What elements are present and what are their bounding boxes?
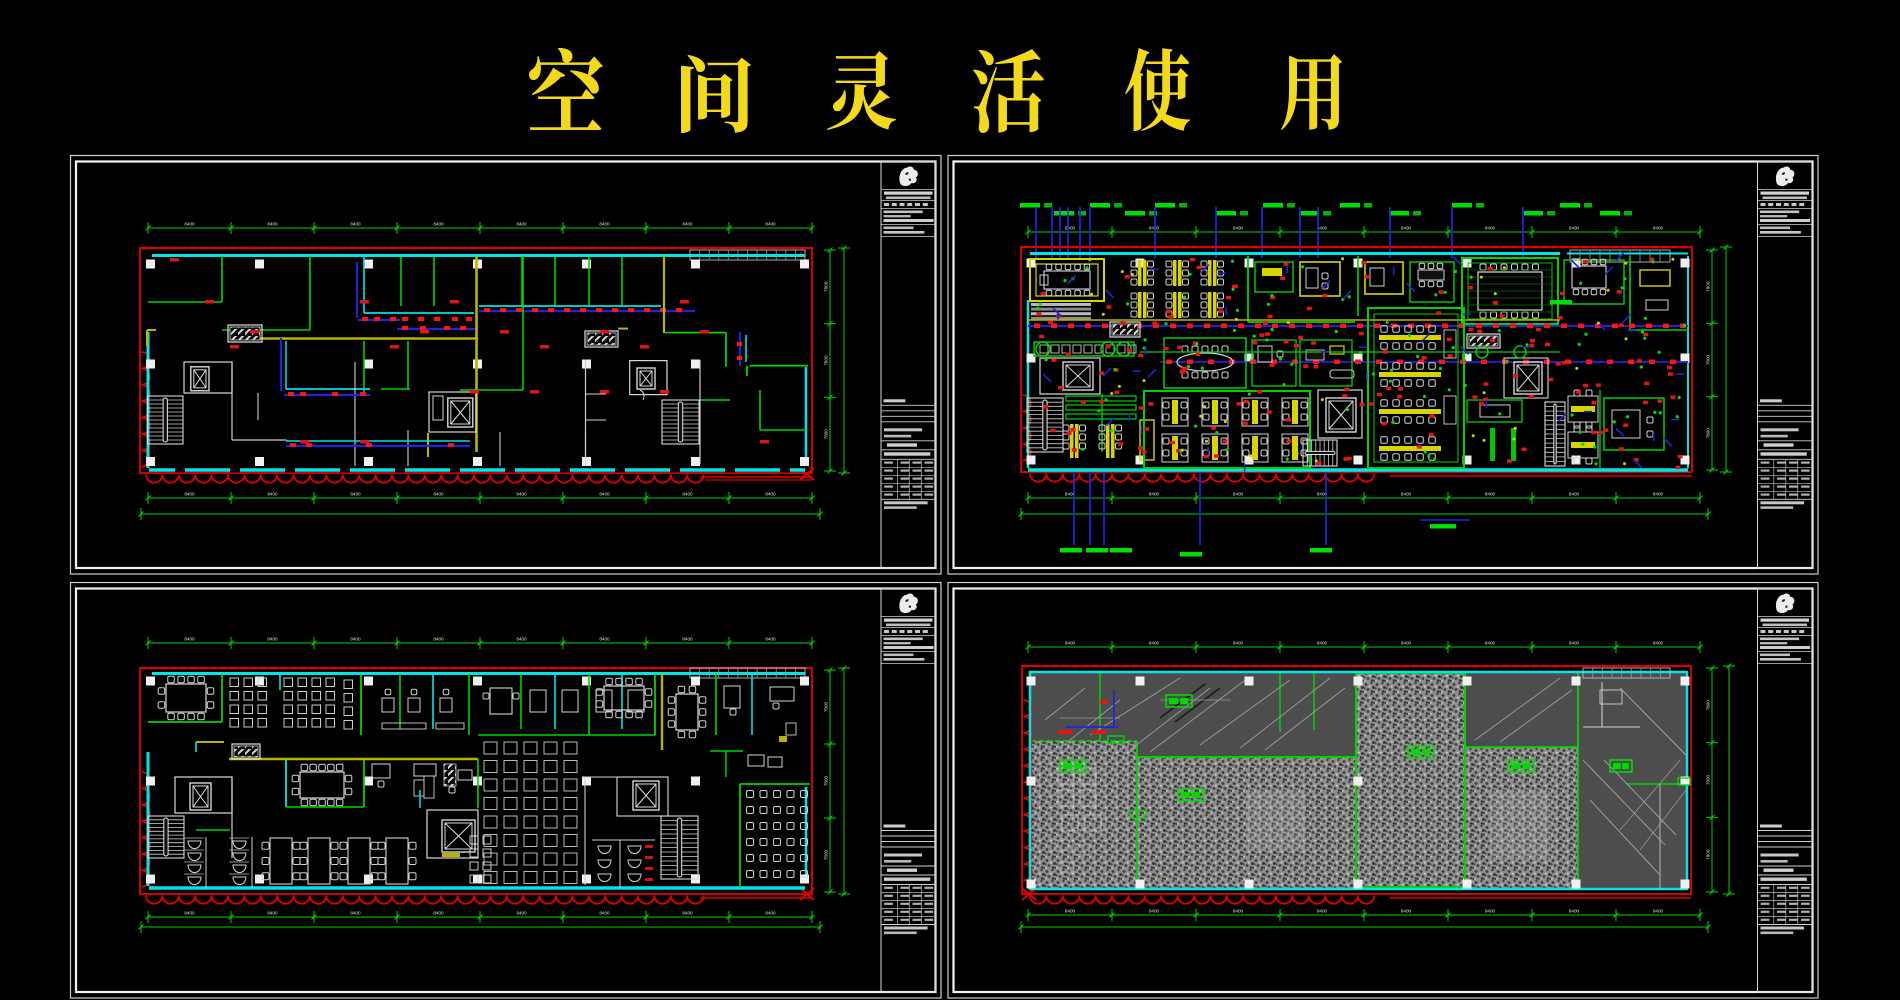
svg-text:8400: 8400 bbox=[1233, 641, 1244, 646]
svg-text:7800: 7800 bbox=[824, 429, 829, 440]
svg-text:8400: 8400 bbox=[682, 637, 693, 642]
svg-text:8400: 8400 bbox=[1653, 909, 1664, 914]
svg-text:8400: 8400 bbox=[184, 222, 195, 227]
svg-text:8400: 8400 bbox=[1065, 226, 1076, 231]
svg-text:8400: 8400 bbox=[765, 222, 776, 227]
svg-text:7800: 7800 bbox=[824, 355, 829, 366]
svg-text:8400: 8400 bbox=[1485, 226, 1496, 231]
svg-text:8400: 8400 bbox=[1317, 641, 1328, 646]
svg-text:8400: 8400 bbox=[1401, 641, 1412, 646]
svg-text:8400: 8400 bbox=[1317, 909, 1328, 914]
svg-text:8400: 8400 bbox=[1653, 492, 1664, 497]
svg-text:7800: 7800 bbox=[824, 701, 829, 712]
svg-text:7800: 7800 bbox=[824, 281, 829, 292]
svg-text:7800: 7800 bbox=[1706, 774, 1711, 785]
svg-text:8400: 8400 bbox=[1065, 909, 1076, 914]
svg-text:8400: 8400 bbox=[765, 637, 776, 642]
svg-text:8400: 8400 bbox=[682, 911, 693, 916]
svg-text:8400: 8400 bbox=[1653, 226, 1664, 231]
svg-text:8400: 8400 bbox=[1065, 641, 1076, 646]
svg-text:8400: 8400 bbox=[1485, 492, 1496, 497]
svg-text:8400: 8400 bbox=[765, 911, 776, 916]
svg-text:7800: 7800 bbox=[824, 849, 829, 860]
svg-text:8400: 8400 bbox=[516, 222, 527, 227]
svg-text:8400: 8400 bbox=[1485, 909, 1496, 914]
svg-text:8400: 8400 bbox=[516, 492, 527, 497]
svg-text:8400: 8400 bbox=[1569, 492, 1580, 497]
svg-text:8400: 8400 bbox=[267, 222, 278, 227]
svg-text:8400: 8400 bbox=[599, 492, 610, 497]
svg-text:8400: 8400 bbox=[599, 911, 610, 916]
svg-text:7800: 7800 bbox=[1706, 428, 1711, 439]
svg-text:8400: 8400 bbox=[267, 911, 278, 916]
svg-text:8400: 8400 bbox=[765, 492, 776, 497]
svg-text:8400: 8400 bbox=[267, 492, 278, 497]
svg-text:8400: 8400 bbox=[516, 911, 527, 916]
svg-text:8400: 8400 bbox=[350, 492, 361, 497]
svg-text:8400: 8400 bbox=[682, 492, 693, 497]
svg-text:8400: 8400 bbox=[350, 911, 361, 916]
svg-text:8400: 8400 bbox=[433, 637, 444, 642]
svg-text:8400: 8400 bbox=[184, 492, 195, 497]
svg-text:8400: 8400 bbox=[516, 637, 527, 642]
svg-text:8400: 8400 bbox=[433, 492, 444, 497]
svg-text:8400: 8400 bbox=[682, 222, 693, 227]
svg-text:7800: 7800 bbox=[1706, 849, 1711, 860]
svg-text:8400: 8400 bbox=[1653, 641, 1664, 646]
svg-text:8400: 8400 bbox=[433, 222, 444, 227]
svg-text:8400: 8400 bbox=[1401, 909, 1412, 914]
svg-text:8400: 8400 bbox=[1569, 641, 1580, 646]
svg-text:8400: 8400 bbox=[184, 637, 195, 642]
svg-text:7800: 7800 bbox=[1706, 281, 1711, 292]
svg-text:7800: 7800 bbox=[1706, 700, 1711, 711]
svg-text:8400: 8400 bbox=[433, 911, 444, 916]
svg-text:8400: 8400 bbox=[1485, 641, 1496, 646]
svg-text:8400: 8400 bbox=[1569, 909, 1580, 914]
svg-text:8400: 8400 bbox=[184, 911, 195, 916]
svg-text:8400: 8400 bbox=[1401, 492, 1412, 497]
svg-text:8400: 8400 bbox=[599, 222, 610, 227]
svg-text:7800: 7800 bbox=[1706, 354, 1711, 365]
svg-text:8400: 8400 bbox=[1149, 909, 1160, 914]
svg-text:8400: 8400 bbox=[1233, 909, 1244, 914]
svg-text:8400: 8400 bbox=[1149, 492, 1160, 497]
svg-text:8400: 8400 bbox=[1233, 226, 1244, 231]
svg-text:8400: 8400 bbox=[267, 637, 278, 642]
svg-text:8400: 8400 bbox=[599, 637, 610, 642]
svg-text:8400: 8400 bbox=[1569, 226, 1580, 231]
svg-text:8400: 8400 bbox=[350, 637, 361, 642]
svg-text:8400: 8400 bbox=[1149, 641, 1160, 646]
svg-text:8400: 8400 bbox=[1233, 492, 1244, 497]
svg-text:8400: 8400 bbox=[1401, 226, 1412, 231]
svg-text:8400: 8400 bbox=[350, 222, 361, 227]
svg-text:7800: 7800 bbox=[824, 775, 829, 786]
